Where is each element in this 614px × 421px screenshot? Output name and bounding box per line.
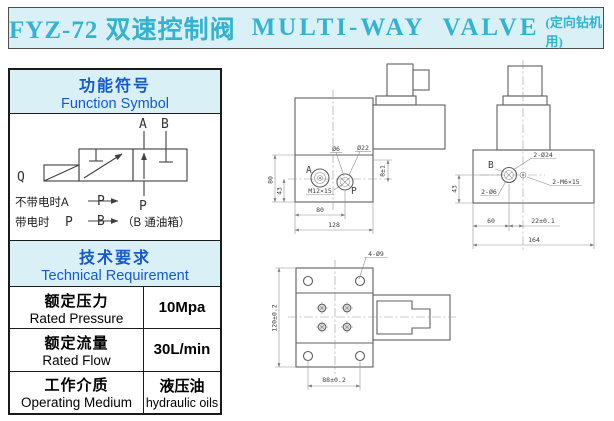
- rated-pressure-row: 额定压力 Rated Pressure 10Mpa: [10, 287, 220, 329]
- symbol-note-line1: 不带电时A: [15, 196, 69, 209]
- symbol-note-line2-suffix: （B 通油箱）: [122, 215, 190, 229]
- svg-text:80: 80: [316, 206, 324, 214]
- side-port-a-label: A: [306, 165, 312, 176]
- operating-medium-label: 工作介质 Operating Medium: [10, 372, 144, 413]
- rated-flow-label: 额定流量 Rated Flow: [10, 329, 144, 370]
- side-dim-port-height: 43: [276, 179, 285, 202]
- function-symbol-cell: A B Q P: [10, 114, 220, 241]
- front-dim-offset: 22±0.1: [509, 217, 560, 226]
- svg-text:128: 128: [328, 221, 340, 229]
- svg-text:22±0.1: 22±0.1: [531, 217, 555, 225]
- technical-drawings: A P Ø6 Ø22 M12×15 80 43: [230, 50, 614, 421]
- side-label-thread: M12×15: [308, 187, 332, 195]
- front-port-b-label: B: [488, 160, 494, 171]
- side-connector-plug: [387, 64, 413, 96]
- datasheet-page: FYZ-72 双速控制阀 MULTI-WAY VALVE (定向钻机用) 功能符…: [0, 0, 614, 421]
- symbol-port-b-label: B: [161, 117, 169, 132]
- spec-table: 功能符号 Function Symbol A B: [8, 68, 222, 415]
- drawing-top-view: 4-Ø9 120±0.2 88±0.2: [271, 250, 457, 390]
- rated-pressure-label: 额定压力 Rated Pressure: [10, 287, 144, 328]
- svg-text:60: 60: [487, 217, 495, 225]
- title-bar: FYZ-72 双速控制阀 MULTI-WAY VALVE (定向钻机用): [8, 7, 604, 49]
- operating-medium-row: 工作介质 Operating Medium 液压油 hydraulic oils: [10, 372, 220, 413]
- front-label-phi6: 2-Ø6: [481, 188, 497, 196]
- svg-text:80: 80: [267, 176, 275, 184]
- valve-box-right: [133, 149, 187, 181]
- symbol-note-line2: 带电时: [15, 216, 50, 229]
- technical-title-en: Technical Requirement: [41, 268, 189, 284]
- front-connector-plug: [508, 66, 542, 96]
- side-label-phi22: Ø22: [357, 144, 369, 152]
- title-name-en: MULTI-WAY VALVE: [252, 14, 540, 42]
- function-symbol-header: 功能符号 Function Symbol: [10, 70, 220, 114]
- top-dim-height: 120±0.2: [271, 268, 297, 367]
- top-port-holes: [316, 302, 353, 333]
- side-port-a: [311, 169, 329, 187]
- function-symbol-title-en: Function Symbol: [61, 96, 169, 112]
- drawing-front-view: B 2-Ø24 2-M6×15 2-Ø6 43 60: [451, 60, 595, 250]
- top-label-holes: 4-Ø9: [368, 250, 384, 258]
- rated-flow-value: 30L/min: [144, 329, 220, 370]
- front-label-bore: 2-Ø24: [533, 151, 553, 159]
- svg-text:88±0.2: 88±0.2: [322, 376, 346, 384]
- svg-text:43: 43: [451, 185, 459, 193]
- top-dim-width: 88±0.2: [308, 361, 360, 390]
- front-solenoid-tower: [497, 105, 550, 150]
- svg-text:164: 164: [528, 236, 540, 244]
- svg-text:8±1: 8±1: [379, 165, 387, 177]
- side-label-phi6: Ø6: [332, 145, 340, 153]
- technical-title-cn: 技术要求: [79, 244, 151, 268]
- symbol-q-glyph: Q: [17, 170, 25, 185]
- rated-flow-row: 额定流量 Rated Flow 30L/min: [10, 329, 220, 371]
- top-solenoid: [373, 295, 450, 340]
- drawing-side-view: A P Ø6 Ø22 M12×15 80 43: [267, 64, 446, 234]
- valve-symbol-diagram: A B Q P: [10, 114, 220, 240]
- symbol-port-a-label: A: [139, 117, 147, 132]
- symbol-port-p-label: P: [139, 199, 147, 214]
- operating-medium-value: 液压油 hydraulic oils: [144, 372, 220, 413]
- side-port-p-label: P: [351, 186, 357, 197]
- svg-text:43: 43: [276, 187, 284, 195]
- title-model-cn: FYZ-72 双速控制阀: [9, 10, 236, 46]
- symbol-note-line2-port: P: [65, 215, 73, 230]
- title-application-note: (定向钻机用): [546, 12, 604, 50]
- function-symbol-title-cn: 功能符号: [79, 72, 151, 96]
- side-solenoid-coil: [373, 105, 445, 149]
- side-dim-width: 128: [295, 202, 373, 234]
- rated-pressure-value: 10Mpa: [144, 287, 220, 328]
- technical-requirement-header: 技术要求 Technical Requirement: [10, 241, 220, 287]
- top-corner-holes: [304, 277, 365, 361]
- svg-text:120±0.2: 120±0.2: [271, 304, 279, 331]
- front-label-thread: 2-M6×15: [552, 178, 579, 186]
